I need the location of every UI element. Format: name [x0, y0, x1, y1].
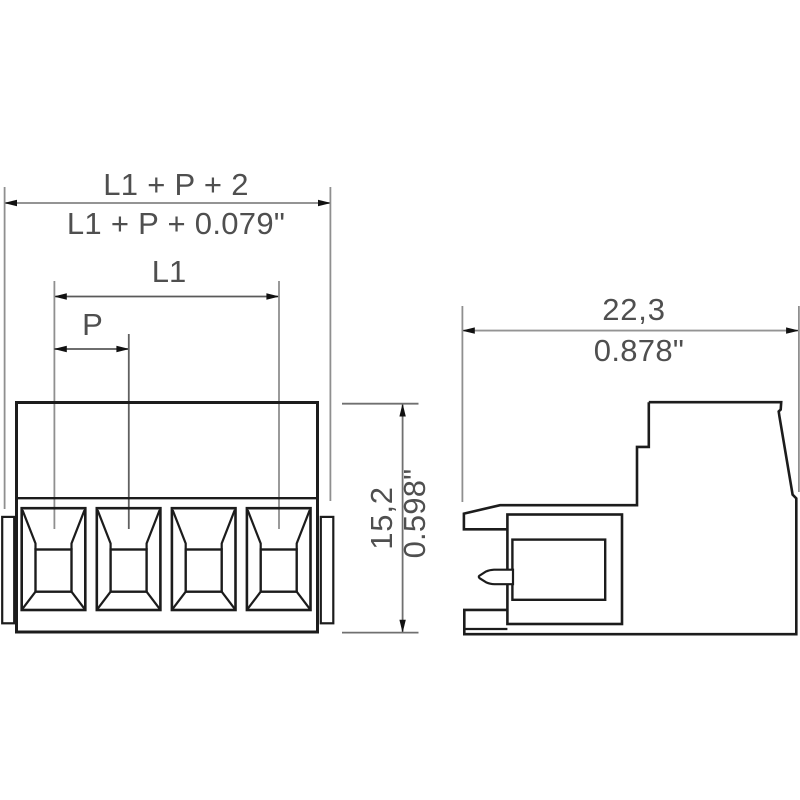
svg-text:L1 + P + 0.079": L1 + P + 0.079"	[67, 206, 285, 241]
svg-text:L1: L1	[152, 254, 186, 289]
svg-text:0.878": 0.878"	[594, 333, 684, 368]
svg-text:P: P	[82, 307, 103, 342]
svg-text:0.598": 0.598"	[397, 469, 432, 559]
svg-text:15,2: 15,2	[364, 486, 399, 550]
svg-text:22,3: 22,3	[602, 292, 666, 327]
svg-text:L1 + P + 2: L1 + P + 2	[103, 167, 249, 202]
